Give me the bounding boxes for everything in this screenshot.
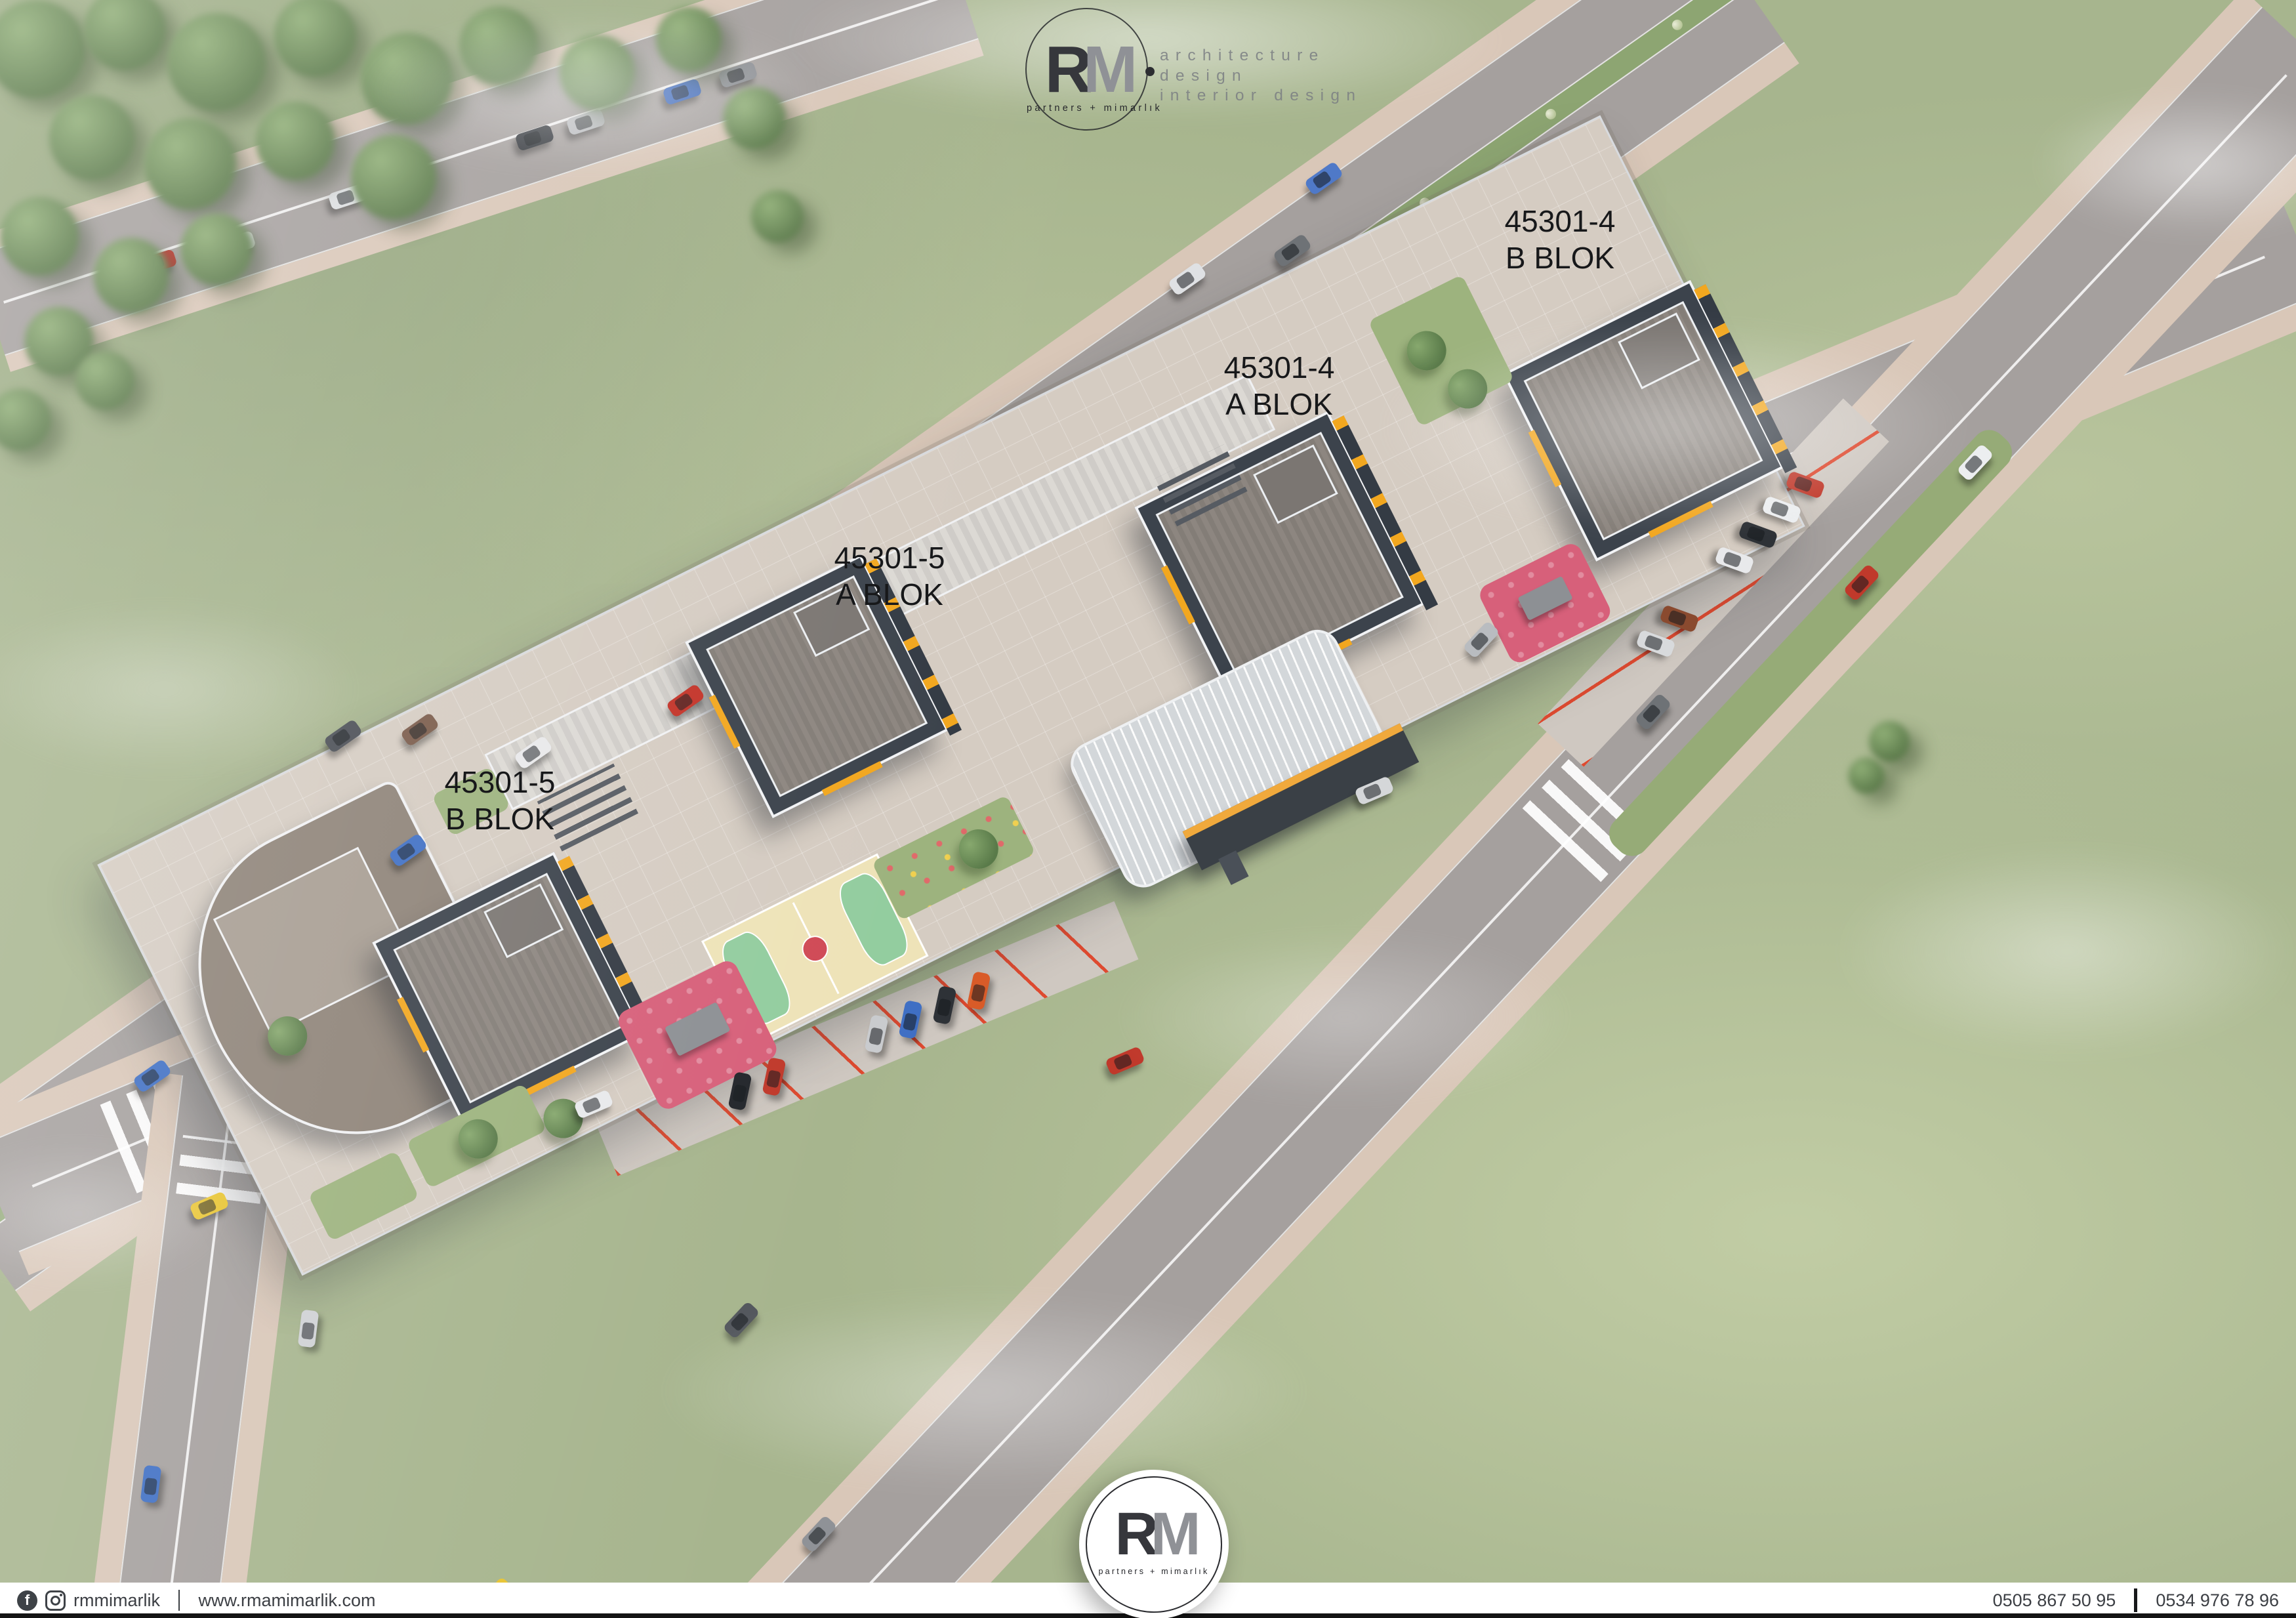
tree <box>0 0 85 98</box>
median-tree-icon <box>1544 107 1558 121</box>
label-block: A BLOK <box>834 576 945 613</box>
building-label-45301-5-a-blok: 45301-5A BLOK <box>834 539 945 613</box>
label-code: 45301-4 <box>1224 349 1335 386</box>
instagram-icon <box>45 1590 66 1611</box>
tree <box>751 190 804 243</box>
tree <box>724 87 786 150</box>
monogram-r: R <box>1045 33 1083 106</box>
tree <box>560 35 635 110</box>
tree <box>94 238 169 314</box>
tree <box>75 351 134 410</box>
rm-logo-top: RM partners + mimarlık architecture desi… <box>1025 8 1148 131</box>
logo-tagline: partners + mimarlık <box>1027 103 1147 114</box>
gate-pillar <box>1218 850 1248 885</box>
building-label-45301-5-b-blok: 45301-5B BLOK <box>445 764 556 837</box>
label-code: 45301-4 <box>1505 203 1616 239</box>
tree <box>144 118 236 210</box>
median-tree-icon <box>1670 18 1685 32</box>
rm-logo-bottom: RM partners + mimarlık <box>1079 1470 1229 1618</box>
car <box>298 1310 319 1348</box>
building-label-45301-4-b-blok: 45301-4B BLOK <box>1505 203 1616 276</box>
monogram-m: M <box>1083 33 1128 106</box>
tree <box>351 135 436 220</box>
footer-right-group: 0505 867 50 95 0534 976 78 96 <box>1993 1588 2279 1612</box>
tree <box>256 102 335 180</box>
service-line: design <box>1160 66 1362 87</box>
car <box>1105 1046 1145 1076</box>
logo-inner-ring <box>1086 1476 1222 1613</box>
bullet-dot-icon <box>1145 67 1155 76</box>
tree <box>0 389 51 451</box>
logo-services: architecture design interior design <box>1160 46 1362 106</box>
tree <box>180 213 253 285</box>
rm-monogram: RM <box>1027 37 1147 102</box>
play-structure <box>1517 576 1572 621</box>
website-url: www.rmamimarlik.com <box>198 1590 375 1611</box>
aerial-render-scene: RM partners + mimarlık architecture desi… <box>0 0 2296 1618</box>
tree <box>274 0 356 77</box>
facebook-icon: f <box>17 1590 37 1611</box>
label-block: B BLOK <box>1505 239 1616 276</box>
tower-45301-4-b-blok <box>1502 280 1784 562</box>
tree <box>1849 758 1885 794</box>
playground-right <box>1476 540 1614 666</box>
residential-complex-site <box>97 115 1805 1276</box>
tree <box>84 0 166 71</box>
flower-garden <box>872 795 1036 921</box>
service-line: architecture <box>1160 46 1362 66</box>
label-code: 45301-5 <box>834 539 945 576</box>
tree <box>167 13 266 112</box>
tree <box>49 95 134 180</box>
car <box>722 1301 760 1340</box>
court-center-circle <box>799 933 830 965</box>
social-handle: rmmimarlik <box>73 1590 160 1611</box>
fog-wisp <box>1837 846 2296 1056</box>
divider <box>2134 1588 2137 1612</box>
label-block: B BLOK <box>445 800 556 837</box>
label-block: A BLOK <box>1224 386 1335 423</box>
lawn-strip <box>308 1151 419 1242</box>
fog-wisp <box>0 604 361 774</box>
tree <box>656 7 722 72</box>
tree <box>459 7 538 85</box>
phone-number-1: 0505 867 50 95 <box>1993 1590 2116 1611</box>
play-structure <box>665 1001 731 1056</box>
tree <box>1869 721 1910 762</box>
phone-number-2: 0534 976 78 96 <box>2156 1590 2279 1611</box>
label-code: 45301-5 <box>445 764 556 800</box>
tree <box>361 33 453 125</box>
building-label-45301-4-a-blok: 45301-4A BLOK <box>1224 349 1335 423</box>
logo-circle-icon: RM partners + mimarlık <box>1025 8 1148 131</box>
service-line: interior design <box>1160 86 1362 106</box>
tree <box>0 197 79 276</box>
footer-left-group: f rmmimarlik www.rmamimarlik.com <box>17 1590 375 1611</box>
divider <box>178 1590 180 1611</box>
